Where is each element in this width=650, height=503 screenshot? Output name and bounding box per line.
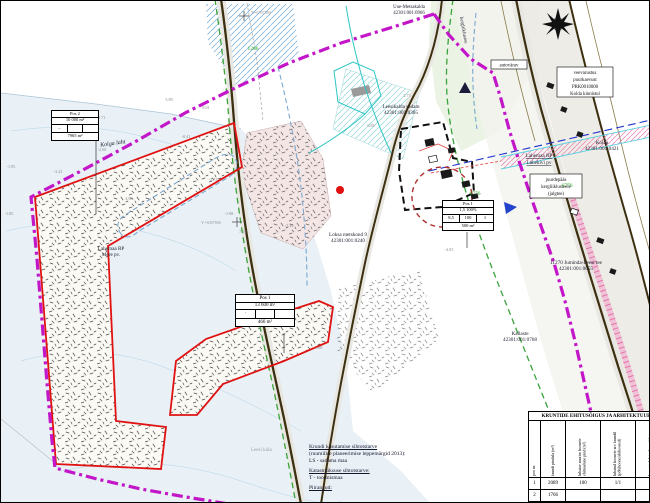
svg-text:5.89: 5.89: [165, 97, 172, 102]
plot-table-cell: –: [52, 125, 68, 132]
cell: 5.5: [636, 478, 650, 489]
coordinate-label: Y=3007800: [201, 220, 221, 225]
building-rights-header: pos nr. krundi pindala (m²) lubatav suur…: [529, 421, 650, 478]
compartment-number: 6776: [470, 191, 481, 197]
water-supply-line3: PRK0010000: [572, 85, 599, 90]
plot-table-footer: 466 m²: [236, 319, 294, 327]
cell: [636, 490, 650, 501]
svg-text:-2.60: -2.60: [98, 147, 107, 152]
plot-table-cell: [256, 310, 276, 318]
plot-table-cell: 100: [460, 215, 477, 222]
legend-heading-cadastre: Katastriüksuse sihtotstarve:: [309, 468, 406, 475]
svg-text:-3.22: -3.22: [54, 169, 63, 174]
water-supply-line2: puurkaevust: [573, 78, 597, 83]
plot-table-cell: [83, 125, 98, 132]
parcel-label: Uue-Metsakalda: [393, 5, 426, 10]
svg-text:-1.85: -1.85: [5, 211, 14, 216]
svg-text:-2.73: -2.73: [209, 177, 218, 182]
building-rights-table: KRUNTIDE EHITUSÕIGUS JA ARHITEKTUURINÕUD…: [528, 411, 650, 503]
cell: 1766: [541, 490, 566, 501]
parcel-label: 42301:001:0240: [331, 238, 365, 244]
protected-area-line1: Lahemaa RP: [526, 153, 553, 159]
access-line3: (jalgtee): [548, 192, 564, 197]
village-name-label: Leesi küla: [251, 448, 272, 453]
svg-text:2.73: 2.73: [403, 93, 410, 98]
legend-block: Krundi kasutamise sihtotstarve (ruumilis…: [309, 444, 406, 492]
protection-zone-label: Mere pv.: [102, 252, 120, 258]
plot-table-pos: Pos 1: [236, 295, 294, 303]
water-supply-line4: Kolda kinnistul: [570, 92, 600, 97]
protected-area-label: Lahemaa RP Lahekivi pv: [526, 153, 553, 166]
plot-table-pos2: Pos 2 10 000 m² – 7965 m²: [51, 110, 99, 141]
col-header-count: lubatud hoonete arv krundil (põhihoone/a…: [613, 421, 622, 477]
legend-subtext: (ruumilise planeerimise leppemärgid 2013…: [309, 451, 406, 458]
svg-text:6.85: 6.85: [367, 123, 374, 128]
protected-area-line2: Lahekivi pv: [527, 160, 552, 166]
svg-text:-1.06: -1.06: [314, 345, 323, 350]
cell: [566, 490, 601, 501]
plot-table-footer: 7965 m²: [52, 133, 98, 140]
col-header-footprint: lubatav suurim hoonete ehitusalune pind …: [578, 421, 587, 477]
gate-label: autovärav: [500, 64, 520, 69]
svg-text:4.09: 4.09: [125, 196, 132, 201]
plot-table-pos: Pos 2: [52, 111, 98, 118]
water-supply-label-box: veevarustus puurkaevust PRK0010000 Kolda…: [557, 67, 613, 97]
cell: 2: [529, 490, 541, 501]
parcel-label: 42301:001:0768: [503, 337, 537, 343]
svg-text:-4.03: -4.03: [445, 247, 454, 252]
road-parcel-label: 42301:001:0055: [559, 266, 593, 272]
compartment-number: 6776: [562, 183, 573, 189]
plot-table-cell: 1: [477, 215, 493, 222]
cell: [601, 490, 636, 501]
cell: 1/1: [601, 478, 636, 489]
svg-text:-0.41: -0.41: [182, 134, 191, 139]
compartment-number: 1286: [248, 46, 259, 52]
cell: 2089: [541, 478, 566, 489]
legend-heading-restrictions: Piirangud:: [309, 485, 406, 492]
plot-table-area: 13 600 m²: [236, 303, 294, 311]
svg-text:-1.98: -1.98: [225, 211, 234, 216]
plot-table-pos1a: Pos 1 13 600 m² · 466 m²: [235, 294, 295, 327]
col-header-pos: pos nr.: [532, 464, 537, 477]
plot-table-pos1b: Pos 1 1,5 100% 8,5 100 1 500 m²: [442, 200, 494, 231]
plot-table-cell: [275, 310, 294, 318]
plot-table-area: 1,5 100%: [443, 208, 493, 215]
coordinate-label: X=6597800: [251, 10, 271, 15]
coordinate-label: 7.20: [239, 229, 246, 234]
borehole-marker: [336, 186, 344, 194]
plot-table-footer: 500 m²: [443, 223, 493, 230]
parcel-label: 42301:001:0966: [393, 11, 425, 16]
building-rights-title: KRUNTIDE EHITUSÕIGUS JA ARHITEKTUURINÕUD…: [529, 412, 650, 421]
detail-plan-map-sheet: Uue-Metsakalda 42301:001:0966 Leesikalda…: [0, 0, 650, 503]
legend-item-t: T - tootmismaa: [309, 475, 406, 482]
svg-text:-2.38: -2.38: [285, 223, 294, 228]
plot-table-pos: Pos 1: [443, 201, 493, 208]
plot-table-area: 10 000 m²: [52, 118, 98, 125]
table-row: 1 2089 100 1/1 5.5: [529, 478, 650, 490]
col-header-area: krundi pindala (m²): [551, 444, 556, 477]
gate-label-box: autovärav: [491, 60, 527, 69]
cell: 100: [566, 478, 601, 489]
plot-table-cell: 8,5: [443, 215, 460, 222]
plot-table-cell: ·: [236, 310, 256, 318]
legend-heading-use: Krundi kasutamise sihtotstarve: [309, 444, 406, 451]
plot-table-cell: [68, 125, 84, 132]
water-supply-line1: veevarustus: [574, 71, 597, 76]
access-label-box: juurdepääs kergliiklusteele (jalgtee): [530, 174, 582, 198]
svg-text:-1.95: -1.95: [7, 164, 16, 169]
svg-text:8.01: 8.01: [202, 105, 209, 110]
parcel-label: 42301:001:0365: [384, 110, 418, 116]
parcel-label: 42301:001:0421: [585, 146, 619, 152]
table-row: 2 1766: [529, 490, 650, 502]
legend-item-ls: LS - sadama maa: [309, 458, 406, 465]
cell: 1: [529, 478, 541, 489]
